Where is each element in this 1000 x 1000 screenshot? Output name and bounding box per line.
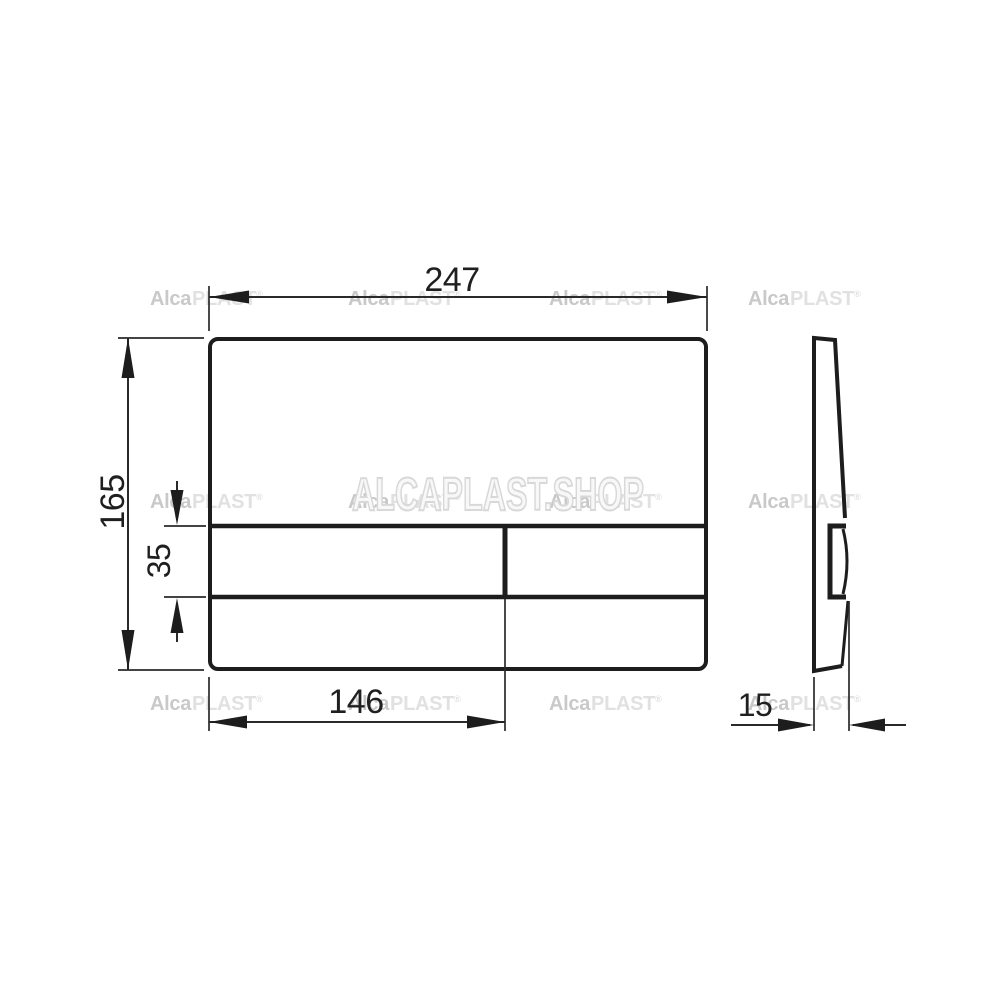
dimension-width: 247 [209, 261, 707, 331]
dim-arrowhead [122, 630, 135, 670]
side-button-arc [843, 529, 847, 594]
technical-drawing: AlcaPLAST® AlcaPLAST® AlcaPLAST® AlcaPLA… [0, 0, 1000, 1000]
dim-label-height: 165 [94, 474, 132, 529]
dim-arrowhead [778, 719, 814, 732]
drawing-canvas: AlcaPLAST® AlcaPLAST® AlcaPLAST® AlcaPLA… [0, 0, 1000, 1000]
watermark-small: AlcaPLAST® [150, 491, 263, 513]
dim-arrowhead [667, 291, 707, 304]
dim-label-button-height: 35 [141, 544, 177, 579]
side-lower-edge [842, 601, 848, 666]
watermark-shop-text: ALCAPLAST.SHOP [352, 468, 644, 520]
dim-arrowhead [849, 719, 885, 732]
watermark-small: AlcaPLAST® [549, 693, 662, 715]
dim-label-depth: 15 [738, 687, 773, 723]
dim-arrowhead [171, 598, 184, 633]
watermark-small: AlcaPLAST® [549, 288, 662, 310]
dim-arrowhead [122, 338, 135, 378]
watermark-small: AlcaPLAST® [748, 288, 861, 310]
dim-label-button-width: 146 [328, 683, 383, 721]
watermark-small: AlcaPLAST® [150, 693, 263, 715]
dim-arrowhead [209, 716, 247, 729]
dim-label-width: 247 [424, 261, 479, 299]
dim-arrowhead [467, 716, 505, 729]
